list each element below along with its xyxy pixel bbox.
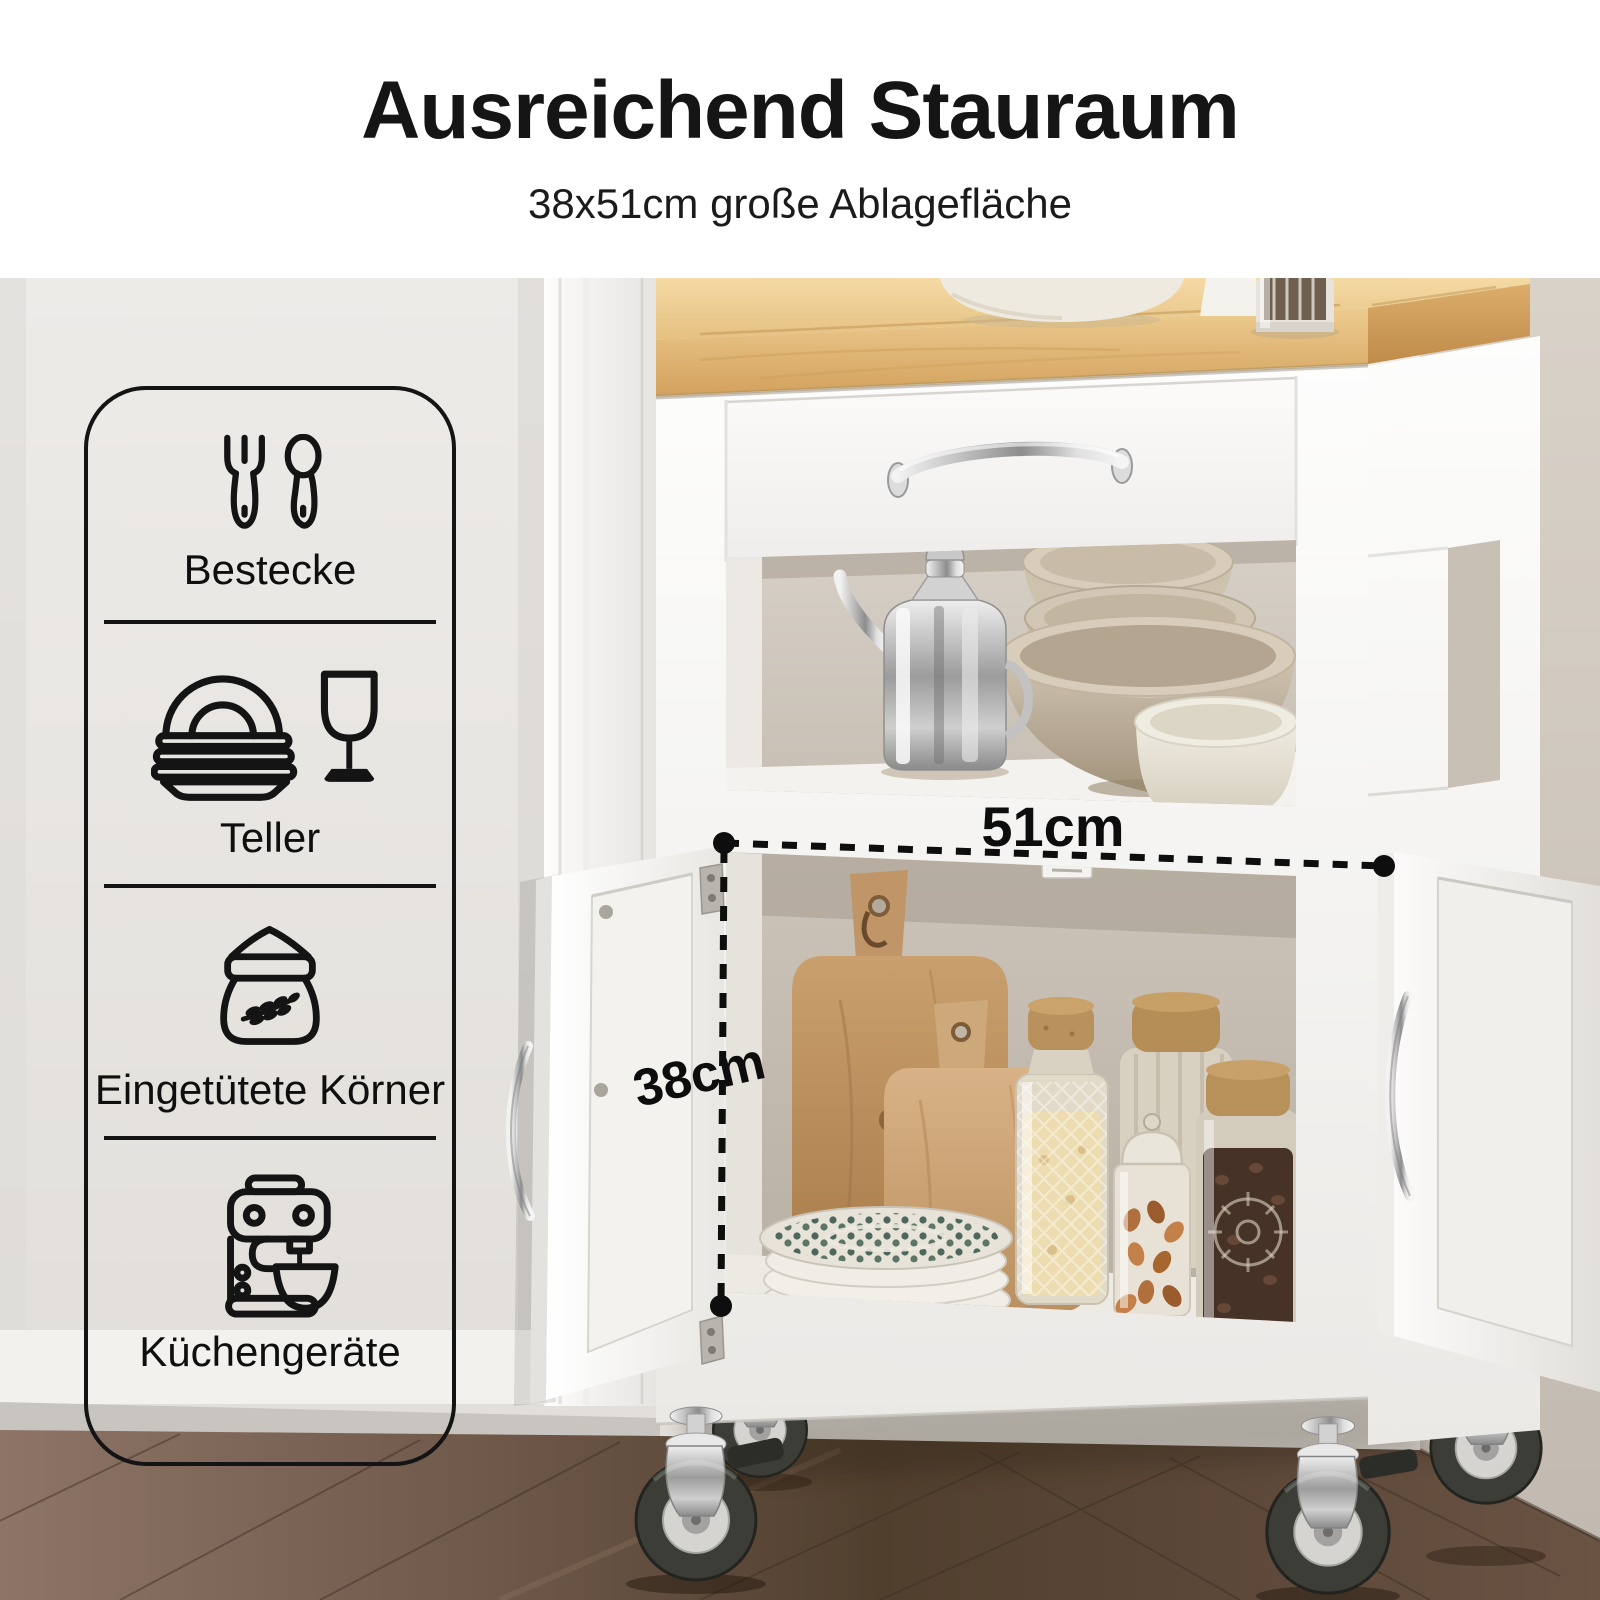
feature-grains: Eingetütete Körner	[95, 920, 445, 1114]
feature-appliances: Küchengeräte	[139, 1170, 401, 1376]
cabinet-interior	[700, 840, 1320, 1346]
feature-cutlery: Bestecke	[184, 434, 357, 594]
page-title: Ausreichend Stauraum	[0, 68, 1600, 154]
left-door-hinge-bottom	[700, 1316, 724, 1364]
feature-plates: Teller	[151, 660, 389, 862]
kitchen-cart	[511, 278, 1600, 1445]
plates-wine-glass-icon	[151, 660, 389, 802]
right-cabinet-door[interactable]	[1378, 852, 1600, 1392]
left-cabinet-door[interactable]	[511, 846, 724, 1406]
feature-label: Küchengeräte	[139, 1328, 401, 1376]
header: Ausreichend Stauraum 38x51cm große Ablag…	[0, 0, 1600, 228]
cutlery-icon	[209, 434, 331, 530]
product-photo: 51cm 38cm Bestecke Teller	[0, 0, 1600, 1600]
divider	[104, 620, 436, 624]
pepper-grinder	[1251, 278, 1339, 339]
drawer[interactable]	[726, 376, 1296, 562]
open-shelf	[700, 520, 1320, 827]
salt-shaker	[1200, 278, 1262, 316]
feature-label: Bestecke	[184, 546, 357, 594]
feature-label: Teller	[220, 814, 320, 862]
width-dimension-label: 51cm	[981, 795, 1124, 858]
feature-panel: Bestecke Teller	[84, 386, 456, 1466]
stand-mixer-icon	[191, 1170, 349, 1320]
grain-sack-icon	[214, 920, 326, 1050]
page-subtitle: 38x51cm große Ablagefläche	[0, 180, 1600, 228]
divider	[104, 884, 436, 888]
feature-label: Eingetütete Körner	[95, 1066, 445, 1114]
serving-bowl	[940, 278, 1184, 328]
divider	[104, 1136, 436, 1140]
coffee-bean-jar	[1196, 1060, 1300, 1346]
